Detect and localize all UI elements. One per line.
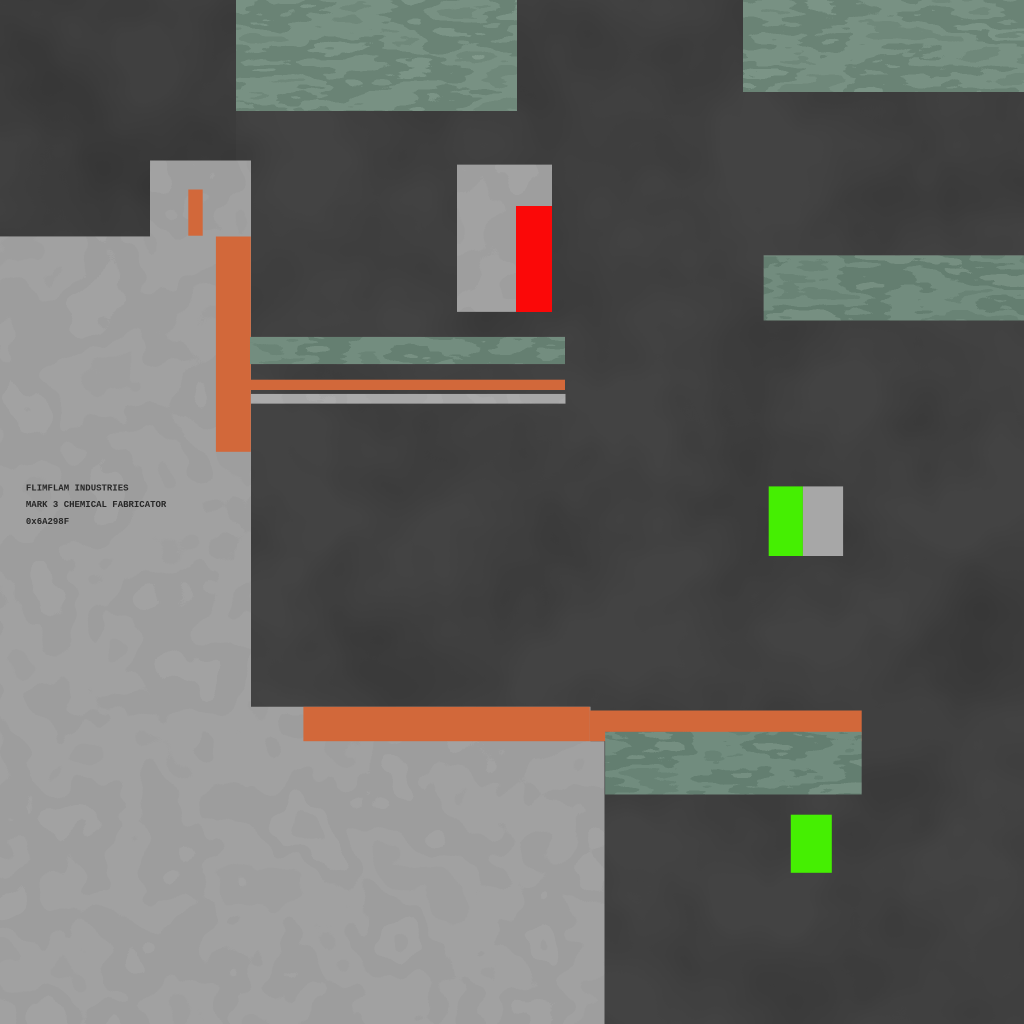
svg-text:FLIMFLAM INDUSTRIES: FLIMFLAM INDUSTRIES — [26, 484, 129, 494]
svg-text:MARK 3 CHEMICAL FABRICATOR: MARK 3 CHEMICAL FABRICATOR — [26, 500, 167, 510]
svg-text:0x6A298F: 0x6A298F — [26, 517, 69, 527]
